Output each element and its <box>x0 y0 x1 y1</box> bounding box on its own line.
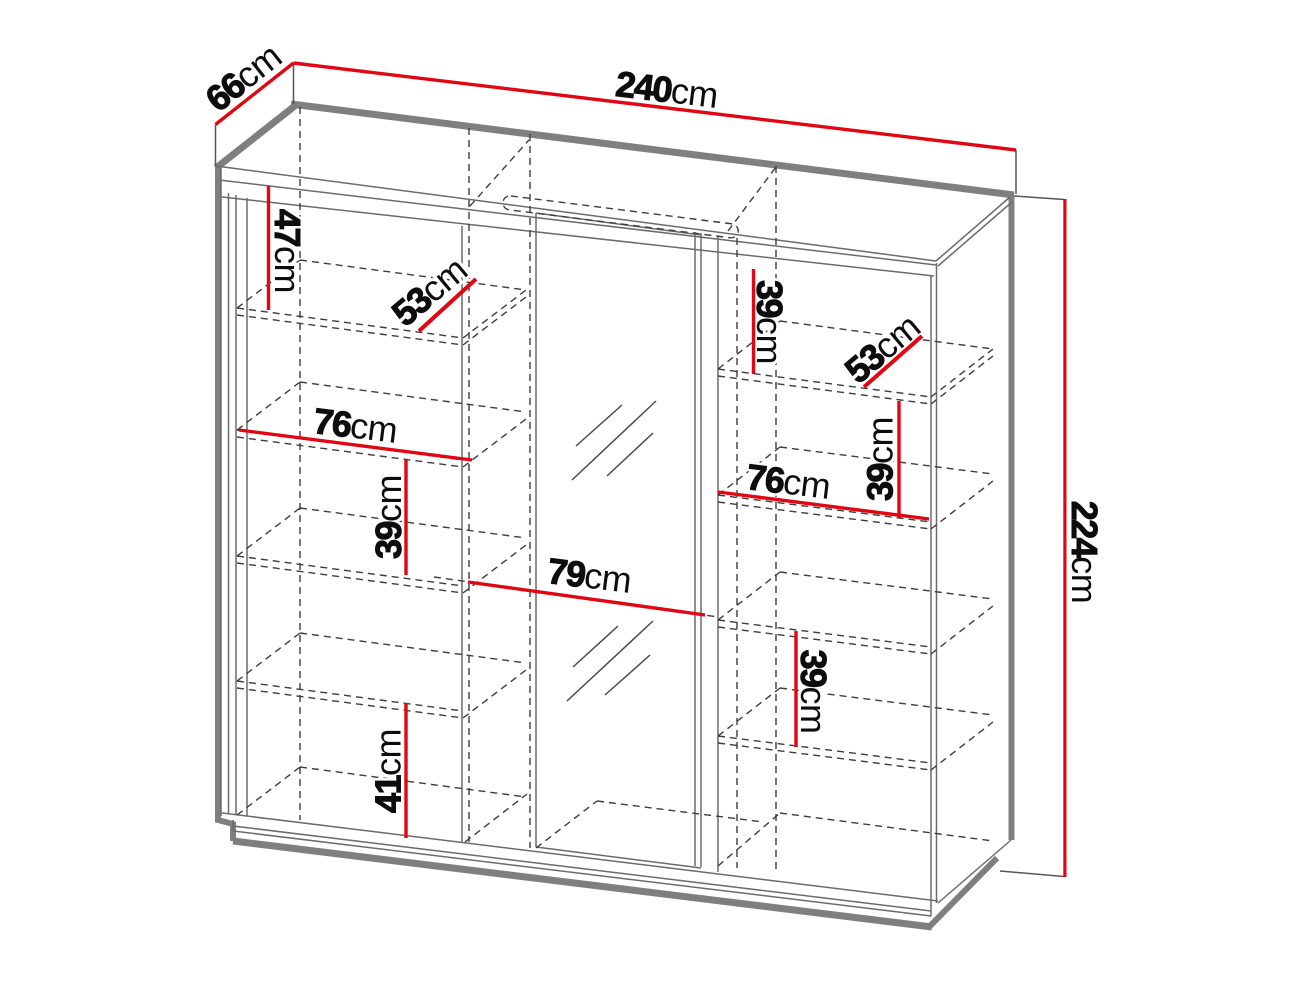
svg-text:39cm: 39cm <box>368 475 409 559</box>
svg-text:41cm: 41cm <box>368 729 409 813</box>
svg-text:47cm: 47cm <box>267 209 308 293</box>
svg-text:39cm: 39cm <box>860 417 901 501</box>
svg-text:224cm: 224cm <box>1064 501 1105 604</box>
svg-text:39cm: 39cm <box>793 649 834 733</box>
